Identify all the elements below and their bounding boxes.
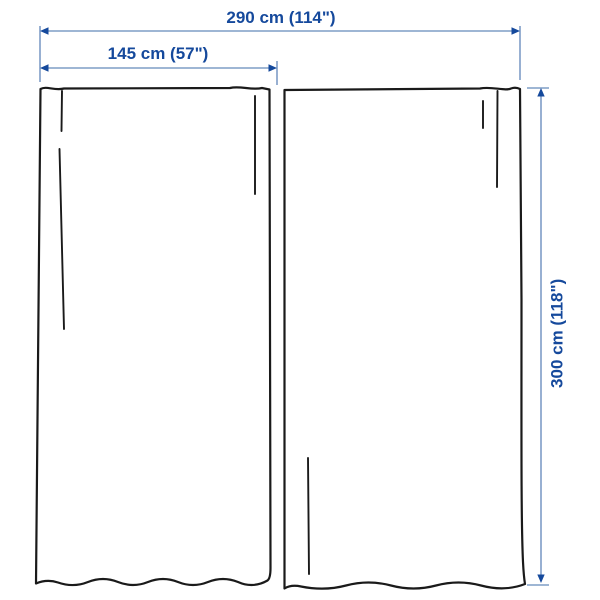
height-dimension xyxy=(527,88,549,585)
arrow-up-icon xyxy=(537,88,544,97)
arrow-right-icon xyxy=(512,27,521,34)
arrow-right-icon xyxy=(269,64,278,71)
diagram-drawing xyxy=(0,0,600,600)
curtain-dimension-diagram: 290 cm (114") 145 cm (57") 300 cm (118") xyxy=(0,0,600,600)
arrow-left-icon xyxy=(40,64,49,71)
arrow-left-icon xyxy=(40,27,49,34)
total-width-label: 290 cm (114") xyxy=(161,9,401,28)
left-panel-outline xyxy=(36,87,271,585)
height-label: 300 cm (118") xyxy=(549,233,568,433)
left-curtain-panel xyxy=(36,87,271,585)
arrow-down-icon xyxy=(537,575,544,584)
panel-width-label: 145 cm (57") xyxy=(58,45,258,64)
panel-width-dimension xyxy=(40,61,277,85)
right-curtain-panel xyxy=(285,88,526,589)
right-panel-outline xyxy=(285,88,526,589)
